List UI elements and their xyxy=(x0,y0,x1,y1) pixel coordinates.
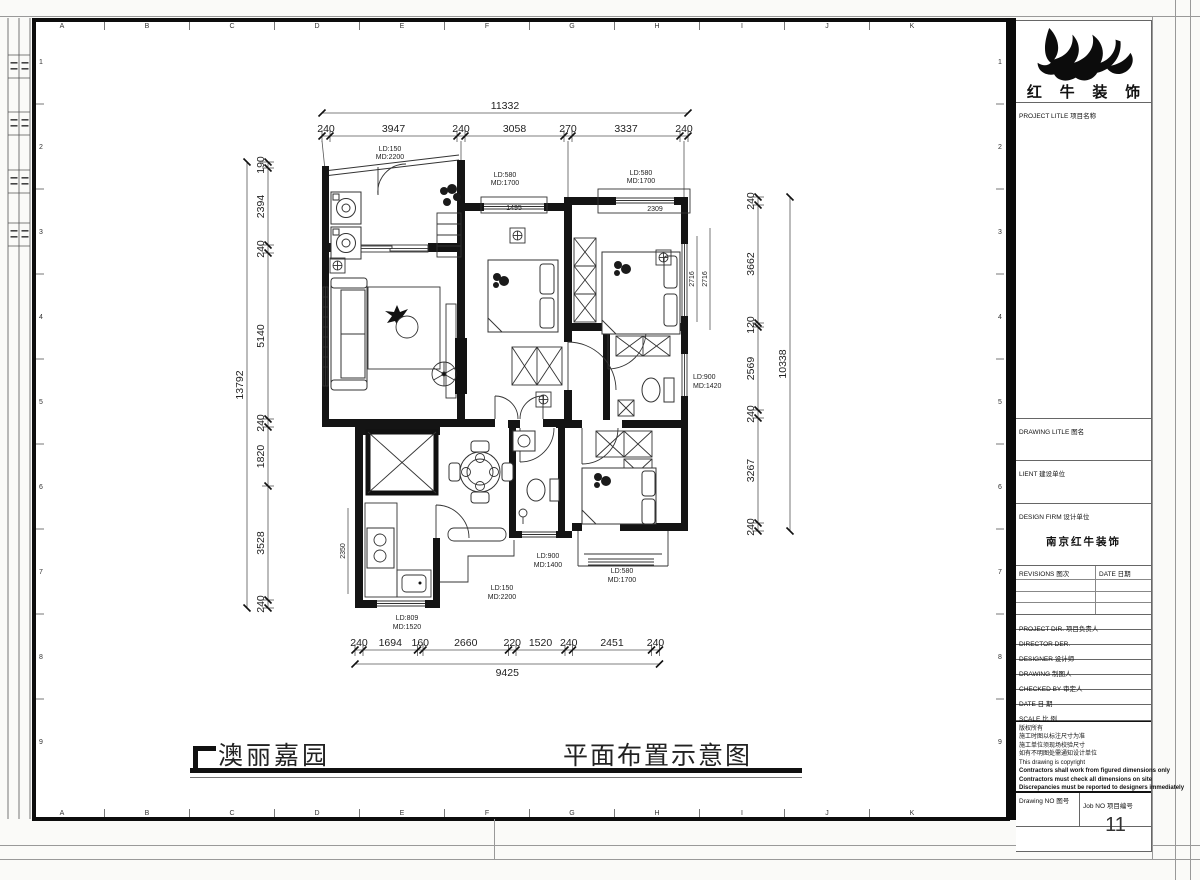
dim-label: 240 xyxy=(255,595,267,613)
grid-number: 6 xyxy=(998,484,1002,491)
grid-number: 4 xyxy=(39,314,43,321)
dim-total: 9425 xyxy=(496,667,520,679)
dim-label: 1820 xyxy=(255,445,267,469)
svg-text:LD:150: LD:150 xyxy=(379,146,402,153)
field-scale: SCALE 比 例 xyxy=(1016,705,1151,721)
sheet-frame xyxy=(34,20,1008,819)
copyright-notes: 版权所有 施工时图以标注尺寸为准 施工单位须现场校验尺寸 如有不明图处需通知设计… xyxy=(1016,721,1151,793)
svg-text:LD:900: LD:900 xyxy=(537,553,560,560)
grid-letter: J xyxy=(825,23,829,30)
grid-number: 5 xyxy=(39,399,43,406)
drawing-title: 平面布置示意图 xyxy=(563,736,752,772)
svg-text:MD:2200: MD:2200 xyxy=(488,594,517,601)
grid-number: 4 xyxy=(998,314,1002,321)
dim-label: 2309 xyxy=(647,206,663,213)
svg-text:LD:150: LD:150 xyxy=(491,585,514,592)
revisions-table: REVISIONS 图次 DATE 日期 xyxy=(1016,566,1151,615)
grid-number: 2 xyxy=(998,144,1002,151)
grid-letter: I xyxy=(741,23,743,30)
revisions-header: REVISIONS 图次 xyxy=(1016,566,1096,579)
dim-label: 3528 xyxy=(255,531,267,555)
dim-label: 3947 xyxy=(382,123,406,135)
svg-text:MD:1400: MD:1400 xyxy=(534,562,563,569)
field-drawing-no: Drawing NO 图号 xyxy=(1016,793,1080,826)
dim-label: 270 xyxy=(559,123,577,135)
field-label: Job NO 项目编号 xyxy=(1083,803,1133,810)
field-job-no: Job NO 项目编号 11 xyxy=(1080,793,1151,826)
dim-total: 10338 xyxy=(777,349,789,378)
grid-letter: J xyxy=(825,810,829,817)
shaft xyxy=(368,432,436,493)
dim-label: 3662 xyxy=(745,252,757,276)
grid-number: 9 xyxy=(998,739,1002,746)
note-line: Contractors shall work from figured dime… xyxy=(1019,767,1148,776)
dim-label: 220 xyxy=(503,637,521,649)
grid-letter: A xyxy=(60,23,65,30)
svg-text:MD:1520: MD:1520 xyxy=(393,624,422,631)
sheet-edge-line xyxy=(1190,0,1191,880)
company-name: 红 牛 装 饰 xyxy=(1020,81,1147,102)
grid-letter: H xyxy=(654,23,659,30)
svg-text:MD:1700: MD:1700 xyxy=(608,577,637,584)
field-design-firm: DESIGN FIRM 设计单位 南京红牛装饰 xyxy=(1016,504,1151,566)
grid-number: 3 xyxy=(998,229,1002,236)
dim-label: 2569 xyxy=(745,357,757,381)
grid-letter: K xyxy=(910,23,915,30)
title-block: 红 牛 装 饰 PROJECT LITLE 项目名称 DRAWING LITLE… xyxy=(1016,20,1152,852)
dim-label: 2716 xyxy=(689,271,696,287)
grid-letter: F xyxy=(485,810,489,817)
field-project-title: PROJECT LITLE 项目名称 xyxy=(1016,103,1151,419)
field-label: DESIGN FIRM 设计单位 xyxy=(1019,514,1089,521)
dim-label: 240 xyxy=(675,123,693,135)
note-line: 施工时图以标注尺寸为准 xyxy=(1019,733,1148,742)
dim-total: 13792 xyxy=(234,370,246,399)
dim-label: 240 xyxy=(560,637,578,649)
grid-number: 6 xyxy=(39,484,43,491)
svg-text:LD:580: LD:580 xyxy=(611,568,634,575)
svg-text:LD:809: LD:809 xyxy=(396,615,419,622)
field-checked-by: CHECKED BY 审定人 xyxy=(1016,675,1151,690)
grid-number: 7 xyxy=(39,569,43,576)
design-firm-value: 南京红牛装饰 xyxy=(1019,534,1148,549)
dim-label: 1694 xyxy=(379,637,403,649)
grid-letter: C xyxy=(229,23,234,30)
dim-label: 2660 xyxy=(454,637,478,649)
field-drawing-title: DRAWING LITLE 图名 xyxy=(1016,419,1151,461)
grid-letter: C xyxy=(229,810,234,817)
grid-letter: B xyxy=(145,810,150,817)
svg-text:MD:1420: MD:1420 xyxy=(693,383,722,390)
grid-letter: E xyxy=(400,23,405,30)
number-fields: Drawing NO 图号 Job NO 项目编号 11 xyxy=(1016,793,1151,827)
revisions-row xyxy=(1016,592,1151,604)
revisions-row xyxy=(1016,580,1151,592)
svg-text:MD:2200: MD:2200 xyxy=(376,154,405,161)
dim-label: 3267 xyxy=(745,459,757,483)
dim-label: 3058 xyxy=(503,123,527,135)
grid-letter: F xyxy=(485,23,489,30)
note-line: Discrepancies must be reported to design… xyxy=(1019,784,1148,793)
dim-total: 11332 xyxy=(491,100,520,112)
dim-label: 3337 xyxy=(614,123,638,135)
dim-label: 120 xyxy=(745,316,757,334)
dim-label: 240 xyxy=(745,518,757,536)
svg-text:LD:580: LD:580 xyxy=(494,172,517,179)
grid-letter: G xyxy=(569,23,574,30)
corner-bracket xyxy=(193,746,216,751)
dim-label: 1520 xyxy=(529,637,553,649)
note-line: 如有不明图处需通知设计单位 xyxy=(1019,750,1148,759)
field-project-dir: PROJECT DIR. 项目负责人 xyxy=(1016,615,1151,630)
title-block-bar xyxy=(1006,18,1016,820)
grid-letter: B xyxy=(145,23,150,30)
field-label: PROJECT LITLE 项目名称 xyxy=(1019,113,1096,120)
dim-label: 240 xyxy=(745,192,757,210)
field-label: LIENT 建设单位 xyxy=(1019,471,1065,478)
grid-letter: H xyxy=(654,810,659,817)
dim-label: 2394 xyxy=(255,195,267,219)
note-line: 版权所有 xyxy=(1019,725,1148,734)
svg-text:MD:1700: MD:1700 xyxy=(491,180,520,187)
field-drawing-by: DRAWING 制图人 xyxy=(1016,660,1151,675)
grid-number: 8 xyxy=(998,654,1002,661)
dim-label: 160 xyxy=(411,637,429,649)
dim-label: 2350 xyxy=(340,543,347,559)
bed-3 xyxy=(582,468,656,524)
svg-text:LD:580: LD:580 xyxy=(630,170,653,177)
dim-label: 240 xyxy=(317,123,335,135)
dim-label: 1495 xyxy=(506,205,522,212)
grid-number: 5 xyxy=(998,399,1002,406)
grid-letter: I xyxy=(741,810,743,817)
field-label: DRAWING LITLE 图名 xyxy=(1019,429,1084,436)
dim-label: 240 xyxy=(255,240,267,258)
sheet-edge-line xyxy=(0,16,1200,17)
dim-label: 240 xyxy=(745,405,757,423)
field-date: DATE 日 期 xyxy=(1016,690,1151,705)
grid-letter: D xyxy=(314,23,319,30)
field-designer: DESIGNER 设计师 xyxy=(1016,645,1151,660)
grid-number: 1 xyxy=(39,59,43,66)
dim-label: 2716 xyxy=(702,271,709,287)
note-line: Contractors must check all dimensions on… xyxy=(1019,776,1148,785)
grid-letter: E xyxy=(400,810,405,817)
sheet-edge-line xyxy=(1152,16,1153,859)
grid-letter: K xyxy=(910,810,915,817)
dim-label: 2451 xyxy=(600,637,624,649)
revisions-date-header: DATE 日期 xyxy=(1096,566,1151,579)
field-client: LIENT 建设单位 xyxy=(1016,461,1151,504)
sheet-edge-line xyxy=(0,859,1200,860)
company-logo: 红 牛 装 饰 xyxy=(1016,21,1151,103)
grid-letter: D xyxy=(314,810,319,817)
svg-text:MD:1700: MD:1700 xyxy=(627,178,656,185)
grid-number: 7 xyxy=(998,569,1002,576)
project-name: 澳丽嘉园 xyxy=(218,736,330,772)
grid-letter: A xyxy=(60,810,65,817)
grid-number: 1 xyxy=(998,59,1002,66)
footer-rule xyxy=(190,777,802,778)
sheet-edge-line xyxy=(1175,0,1176,880)
note-line: 施工单位须现场校验尺寸 xyxy=(1019,742,1148,751)
grid-number: 2 xyxy=(39,144,43,151)
brand-swoosh-icon xyxy=(1024,23,1144,81)
dim-label: 5140 xyxy=(255,324,267,348)
sofa xyxy=(331,278,367,390)
note-line: This drawing is copyright xyxy=(1019,759,1148,768)
bed-2 xyxy=(602,252,680,334)
revisions-row xyxy=(1016,603,1151,614)
grid-letter: G xyxy=(569,810,574,817)
dim-label: 240 xyxy=(452,123,470,135)
bed-1 xyxy=(488,260,558,332)
grid-number: 9 xyxy=(39,739,43,746)
svg-text:LD:900: LD:900 xyxy=(693,374,716,381)
fold-mark xyxy=(494,819,495,859)
footer-rule xyxy=(190,768,802,773)
job-no-value: 11 xyxy=(1083,814,1148,837)
dim-label: 190 xyxy=(255,156,267,174)
dim-label: 240 xyxy=(255,414,267,432)
drawing-sheet: AABBCCDDEEFFGGHHIIJJKK112233445566778899 xyxy=(0,0,1200,880)
grid-number: 8 xyxy=(39,654,43,661)
dim-label: 240 xyxy=(350,637,368,649)
grid-number: 3 xyxy=(39,229,43,236)
binding-tabs xyxy=(8,18,30,819)
field-director: DIRECTOR DER. xyxy=(1016,630,1151,645)
dim-label: 240 xyxy=(647,637,665,649)
